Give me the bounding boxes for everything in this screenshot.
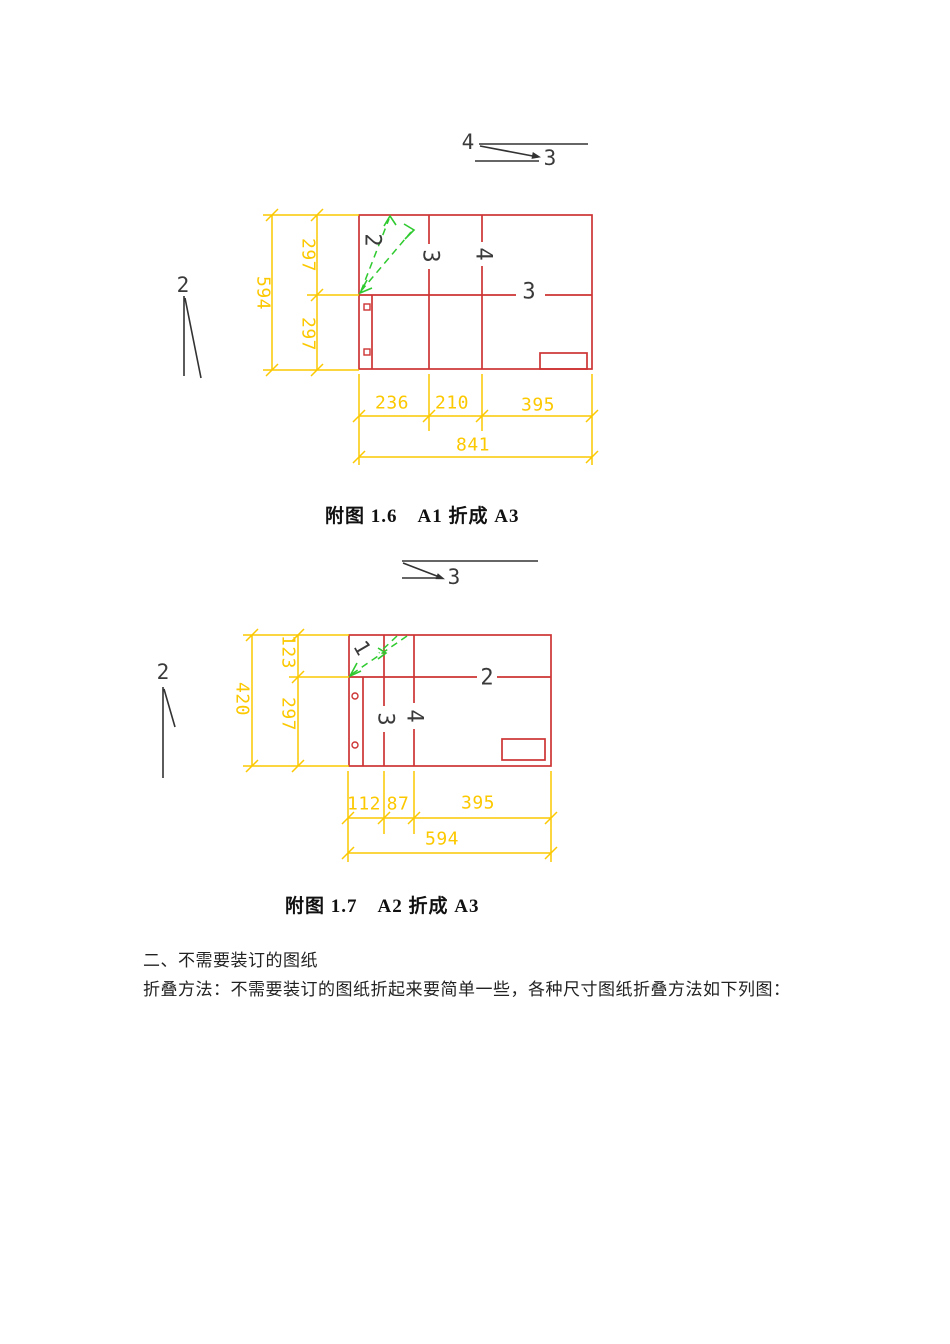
dim-height-total: 594 [253, 276, 274, 310]
fold-arc-dashed [361, 219, 411, 291]
step-indicator-lines [184, 296, 201, 378]
step-label-2: 2 [157, 660, 170, 684]
dim-width-total: 594 [425, 829, 459, 850]
document-page: 4 3 2 2 [0, 0, 950, 1344]
figure2-panel-labels: 1 3 4 2 [348, 637, 493, 726]
title-block [540, 353, 587, 369]
panel-label-4-vertical: 4 [471, 247, 496, 260]
figure1-drawing: 4 3 2 2 [177, 130, 598, 465]
cad-drawing-layer: 4 3 2 2 [0, 0, 950, 1344]
fold-step-label-3: 3 [448, 565, 461, 589]
dimension-lines [243, 635, 551, 862]
sheet-outline [349, 635, 551, 766]
dim-width-seg3: 395 [461, 793, 495, 814]
figure1-sheet [359, 215, 592, 369]
step-label-2: 2 [177, 273, 190, 297]
fold-step-label-4: 4 [462, 130, 475, 154]
binding-hole-top [364, 304, 370, 310]
figure1-left-step-indicator: 2 [177, 273, 201, 378]
fold-lines-red [359, 215, 592, 369]
dim-width-seg2: 87 [387, 794, 410, 815]
panel-label-fold-1: 1 [348, 637, 375, 660]
fold-arrowheads-icon [360, 216, 414, 293]
arrowhead-icon [532, 152, 542, 159]
dim-width-seg1: 112 [347, 794, 381, 815]
figure1-fold-sequence-arrow: 4 3 [462, 130, 588, 170]
dim-height-bottom: 297 [278, 697, 299, 731]
figure1-panel-labels: 2 3 4 3 [360, 233, 536, 304]
dim-height-bottom: 297 [298, 317, 319, 351]
figure1-dimensions: 594 297 297 236 210 395 841 [253, 209, 599, 465]
fold-step-label-3: 3 [544, 146, 557, 170]
figure2-drawing: 3 2 1 3 [157, 561, 557, 862]
figure2-sheet [349, 635, 551, 766]
panel-label-fold-2: 2 [360, 233, 385, 246]
dim-height-top: 297 [298, 238, 319, 272]
sheet-outline [359, 215, 592, 369]
dim-width-seg1: 236 [375, 393, 409, 414]
step-indicator-lines [163, 687, 175, 778]
panel-label-3-horizontal: 3 [522, 280, 535, 305]
panel-label-3-vertical: 3 [418, 249, 443, 262]
figure1-caption: 附图 1.6 A1 折成 A3 [325, 501, 519, 528]
figure2-fold-sequence-arrow: 3 [402, 561, 538, 589]
body-paragraph: 折叠方法：不需要装订的图纸折起来要简单一些，各种尺寸图纸折叠方法如下列图： [143, 975, 791, 1000]
dim-width-seg2: 210 [435, 393, 469, 414]
dim-width-seg3: 395 [521, 395, 555, 416]
arrowhead-icon [436, 573, 446, 579]
fold-sequence-lines [402, 561, 538, 578]
figure2-dimensions: 420 123 297 112 87 395 594 [232, 629, 558, 862]
section-heading: 二、不需要装订的图纸 [143, 946, 318, 971]
binding-hole-bottom [352, 742, 358, 748]
binding-hole-bottom [364, 349, 370, 355]
dim-height-total: 420 [232, 682, 253, 716]
dim-width-total: 841 [456, 435, 490, 456]
panel-label-3-vertical: 3 [373, 712, 398, 725]
figure2-left-step-indicator: 2 [157, 660, 175, 778]
fold-lines-red [349, 635, 551, 766]
dim-height-top: 123 [278, 635, 299, 669]
figure1-fold-arrows-green [360, 216, 414, 293]
panel-label-4-vertical: 4 [402, 709, 427, 722]
figure2-caption: 附图 1.7 A2 折成 A3 [285, 891, 479, 918]
panel-label-2-horizontal: 2 [480, 666, 493, 691]
fold-sequence-lines [475, 144, 588, 161]
title-block [502, 739, 545, 760]
binding-hole-top [352, 693, 358, 699]
